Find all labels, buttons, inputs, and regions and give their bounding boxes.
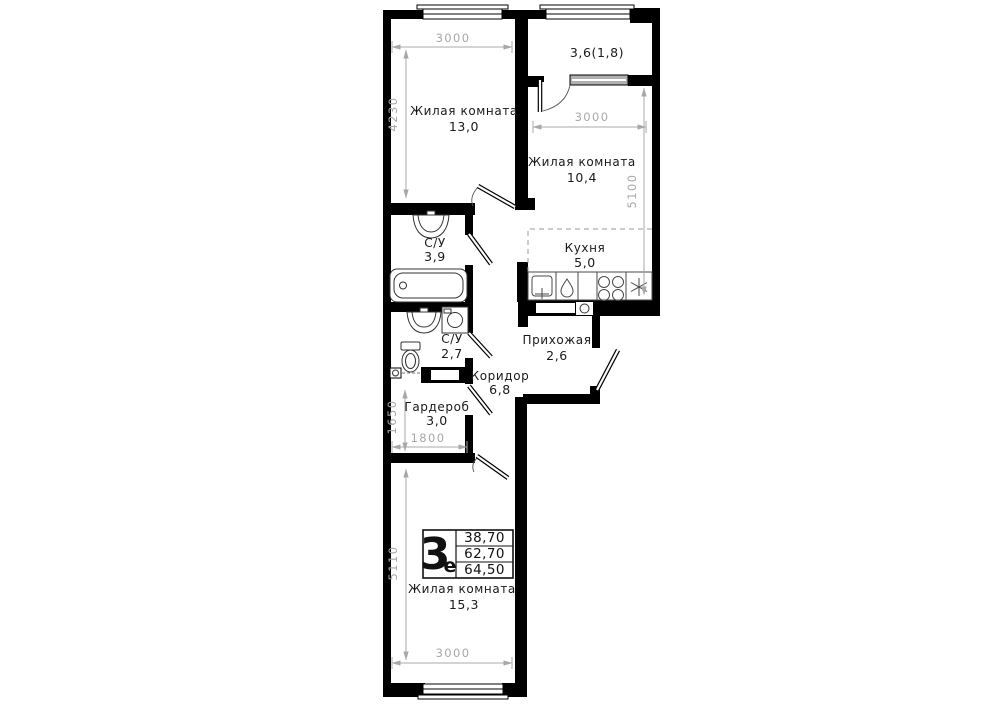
stamp-area-total: 38,70	[464, 530, 505, 546]
dim-wardrobe-width: 1800	[392, 431, 467, 453]
room-area-living1: 13,0	[449, 119, 479, 134]
door-bath2	[469, 333, 491, 357]
door-living3	[473, 456, 508, 478]
dim-living2-depth: 5100	[625, 88, 644, 295]
door-balcony	[536, 76, 570, 112]
room-area-wardrobe: 3,0	[426, 413, 448, 428]
door-bath1	[469, 234, 491, 264]
room-label-balcony: 3,6(1,8)	[570, 45, 624, 60]
room-label-bath2: С/У	[441, 332, 463, 346]
dim-label-wardrobe-width: 1800	[411, 431, 446, 445]
wall-kitchen-bottom-stub	[518, 300, 528, 327]
room-area-living2: 10,4	[567, 170, 597, 185]
wall-bath-right-d	[465, 415, 473, 455]
dim-living3-width: 3000	[392, 646, 512, 669]
wall-hall-bottom	[523, 394, 600, 404]
room-area-corridor: 6,8	[489, 382, 511, 397]
room-area-bath1: 3,9	[424, 249, 446, 264]
dim-label-living1-width: 3000	[436, 31, 471, 45]
room-label-corridor: Коридор	[471, 369, 530, 383]
wall-right	[652, 10, 660, 316]
floor-plan-page: 3000 4230 3000 5100 1650 1800 5110	[0, 0, 1000, 707]
window-living3	[418, 684, 508, 699]
stamp-type-letter: е	[444, 555, 457, 577]
dim-label-living3-width: 3000	[436, 646, 471, 660]
room-label-wardrobe: Гардероб	[404, 400, 469, 414]
room-label-bath1: С/У	[424, 236, 446, 250]
room-label-hall: Прихожая	[522, 333, 591, 347]
apartment-type-stamp: 3 е 38,70 62,70 64,50	[420, 529, 513, 580]
toilet-icon	[401, 342, 420, 372]
wall-center-lower	[515, 397, 527, 697]
dim-label-living3-depth: 5110	[386, 546, 400, 581]
room-label-living2: Жилая комната	[528, 155, 636, 169]
wall-top-1	[383, 10, 423, 19]
wall-balcony-divider-2	[628, 75, 654, 86]
bathtub-icon	[390, 269, 467, 302]
stamp-area-full: 64,50	[464, 562, 505, 578]
door-entrance	[597, 350, 618, 390]
dim-label-living2-width: 3000	[575, 110, 610, 124]
sink-icon-bath1	[413, 211, 449, 238]
window-living1	[417, 5, 508, 19]
washing-machine-icon-bath2	[442, 307, 468, 333]
room-area-kitchen: 5,0	[574, 255, 596, 270]
wall-bath-right-a	[465, 203, 473, 235]
wall-wardrobe-bottom	[383, 453, 475, 463]
dim-label-living2-depth: 5100	[625, 174, 639, 209]
window-balcony-divider	[570, 75, 628, 85]
wall-niche	[536, 303, 575, 313]
window-balcony	[540, 5, 634, 19]
sink-icon-bath2	[407, 308, 441, 333]
dim-label-wardrobe-depth: 1650	[385, 400, 399, 435]
room-label-living1: Жилая комната	[410, 104, 518, 118]
room-label-kitchen: Кухня	[565, 241, 606, 255]
room-label-living3: Жилая комната	[408, 582, 516, 596]
door-wardrobe	[469, 386, 491, 414]
stamp-area-living: 62,70	[464, 546, 505, 562]
room-area-hall: 2,6	[546, 348, 568, 363]
kitchen-sink-icon	[532, 276, 552, 299]
door-living1	[472, 186, 515, 207]
dim-living2-width: 3000	[533, 110, 646, 133]
floor-plan: 3000 4230 3000 5100 1650 1800 5110	[0, 0, 1000, 707]
dim-living1-width: 3000	[392, 31, 512, 53]
room-area-bath2: 2,7	[441, 346, 463, 361]
wall-kitchen-left	[517, 262, 528, 302]
wall-center-stub	[515, 198, 535, 210]
room-area-living3: 15,3	[449, 597, 479, 612]
dim-label-living1-depth: 4230	[386, 97, 400, 132]
vent-shaft	[431, 370, 459, 380]
